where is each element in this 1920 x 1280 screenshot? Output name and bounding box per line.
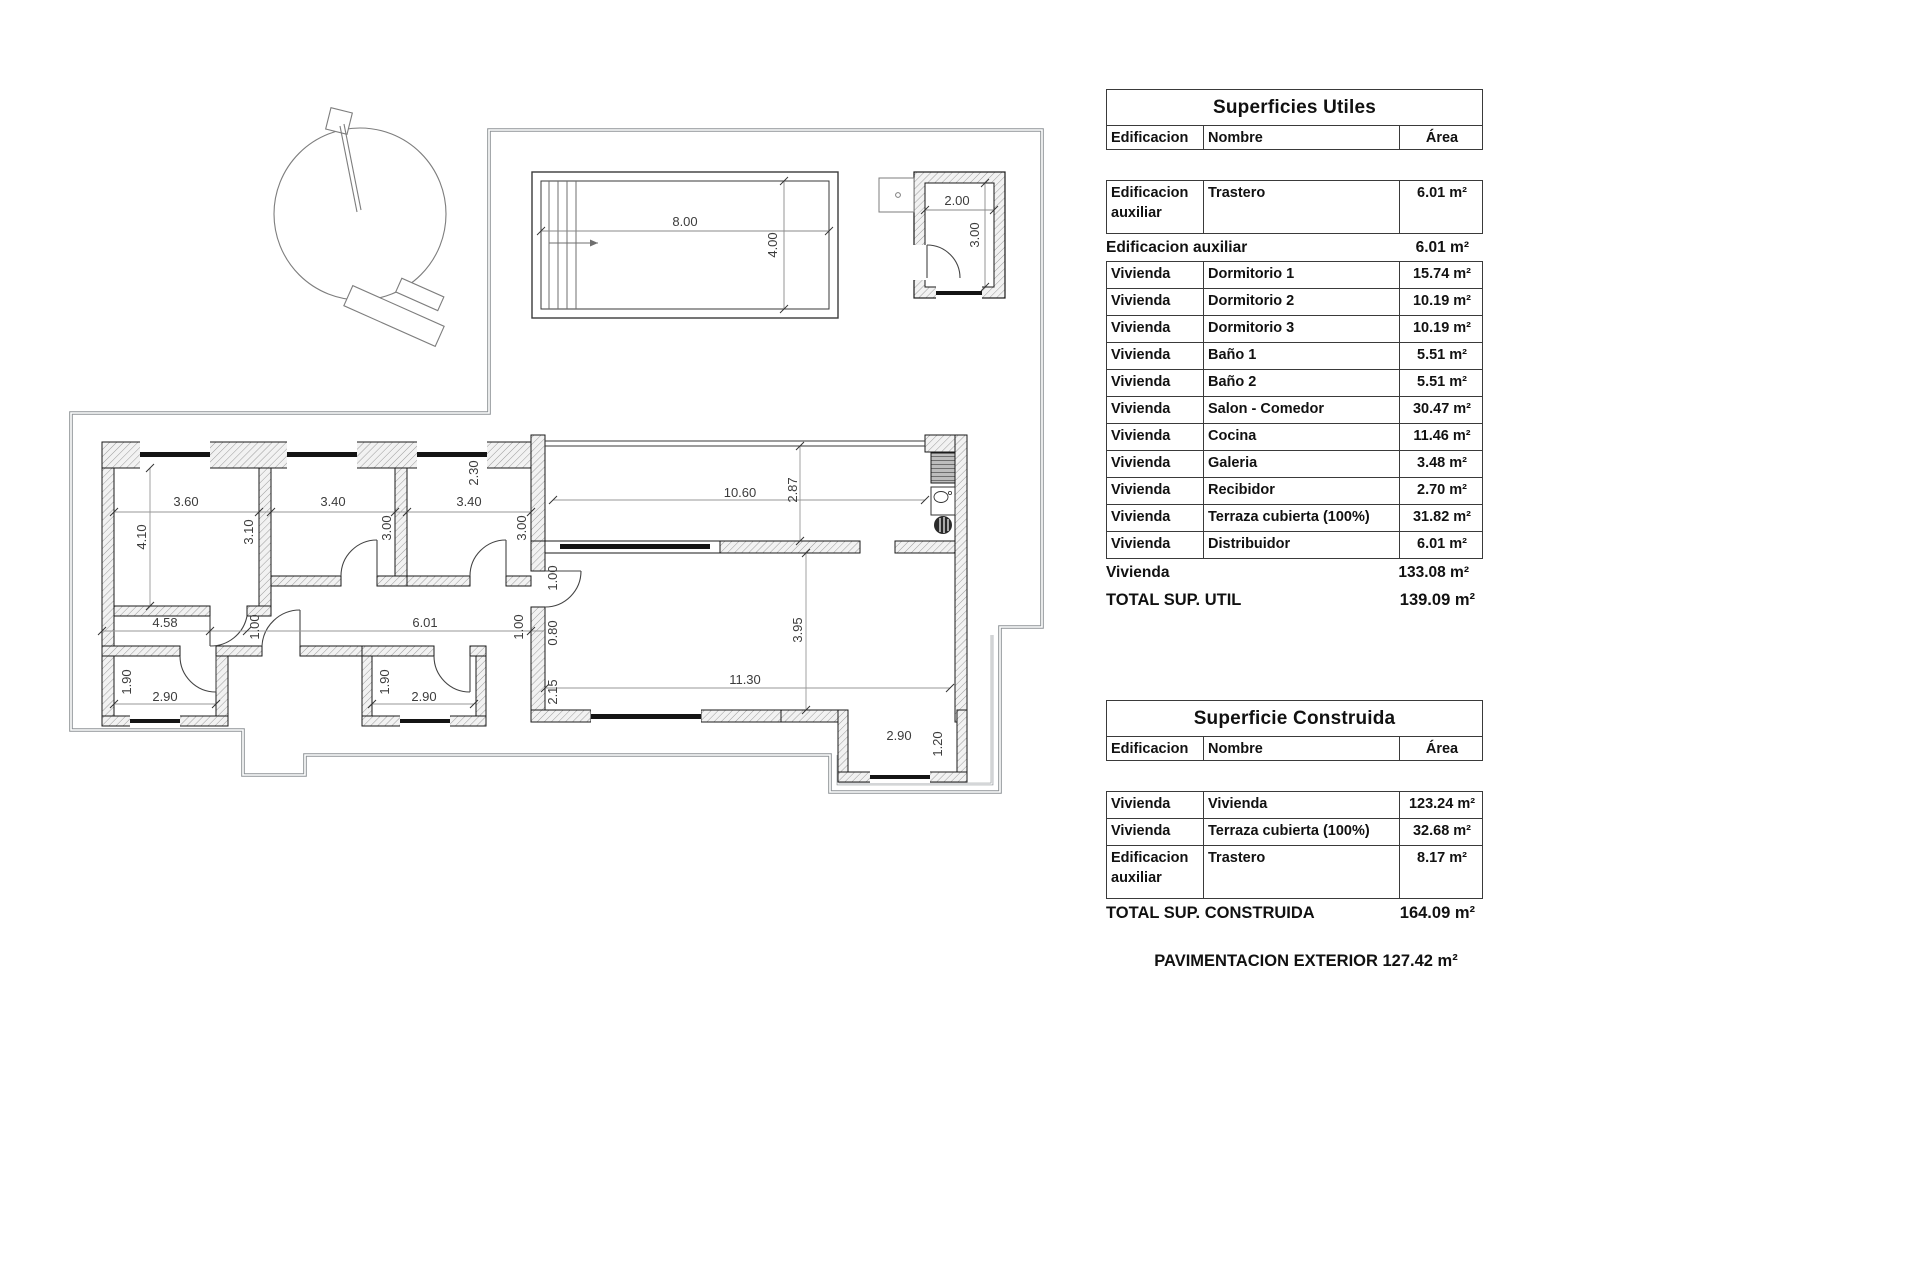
dim-label: 1.00	[247, 614, 262, 639]
table-row: ViviendaTerraza cubierta (100%)32.68 m²	[1106, 819, 1483, 846]
total-label: TOTAL SUP. CONSTRUIDA	[1106, 904, 1315, 923]
subtotal-row: Edificacion auxiliar 6.01 m²	[1106, 234, 1483, 261]
table-cell: Vivienda	[1107, 478, 1203, 504]
table-cell: Terraza cubierta (100%)	[1203, 505, 1399, 531]
table-cell: 5.51 m²	[1399, 370, 1484, 396]
table-cell: 5.51 m²	[1399, 343, 1484, 369]
subtotal-label: Edificacion auxiliar	[1106, 239, 1247, 257]
table-cell: Salon - Comedor	[1203, 397, 1399, 423]
dim-label: 3.40	[456, 494, 481, 509]
floor-plan: 8.00 4.00 2.00 3.	[0, 0, 1920, 1280]
dim-label: 3.00	[514, 515, 529, 540]
column-header: Edificacion	[1107, 126, 1203, 149]
dim-label: 2.90	[152, 689, 177, 704]
total-value: 164.09 m²	[1400, 904, 1475, 923]
total-value: 139.09 m²	[1400, 591, 1475, 610]
table-cell: Trastero	[1203, 846, 1399, 898]
subtotal-value: 6.01 m²	[1416, 239, 1469, 257]
equipment-box	[879, 178, 914, 212]
table-cell: Vivienda	[1203, 792, 1399, 818]
table-cell: Recibidor	[1203, 478, 1399, 504]
table-cell: Vivienda	[1107, 397, 1203, 423]
table-body: ViviendaVivienda123.24 m²ViviendaTerraza…	[1106, 791, 1483, 899]
table-cell: Vivienda	[1107, 451, 1203, 477]
dim-label: 1.20	[930, 731, 945, 756]
kitchen-fixtures	[931, 453, 955, 534]
trastero-building: 2.00 3.00	[879, 172, 1005, 299]
table-row: ViviendaBaño 15.51 m²	[1106, 343, 1483, 370]
table-row: ViviendaDistribuidor6.01 m²	[1106, 532, 1483, 559]
table-cell: Vivienda	[1107, 316, 1203, 342]
table-cell: Trastero	[1203, 181, 1399, 233]
dim-label: 3.40	[320, 494, 345, 509]
total-row: TOTAL SUP. UTIL 139.09 m²	[1106, 586, 1483, 614]
dim-label: 10.60	[724, 485, 757, 500]
dim-label: 4.10	[134, 524, 149, 549]
table-cell: Dormitorio 1	[1203, 262, 1399, 288]
table-cell: Vivienda	[1107, 289, 1203, 315]
table-row: Edificacion auxiliarTrastero6.01 m²	[1106, 181, 1483, 234]
table-title: Superficies Utiles	[1106, 89, 1483, 126]
table-cell: Distribuidor	[1203, 532, 1399, 558]
table-cell: Terraza cubierta (100%)	[1203, 819, 1399, 845]
table-title: Superficie Construida	[1106, 700, 1483, 737]
dim-label: 3.60	[173, 494, 198, 509]
subtotal-value: 133.08 m²	[1398, 564, 1469, 582]
table-cell: Baño 2	[1203, 370, 1399, 396]
dim-label: 0.80	[545, 620, 560, 645]
subtotal-label: Vivienda	[1106, 564, 1169, 582]
table-row: ViviendaDormitorio 310.19 m²	[1106, 316, 1483, 343]
table-row: ViviendaBaño 25.51 m²	[1106, 370, 1483, 397]
dim-label: 2.15	[545, 679, 560, 704]
blueprint-page: 8.00 4.00 2.00 3.	[0, 0, 1920, 1280]
table-cell: 123.24 m²	[1399, 792, 1484, 818]
table-cell: Dormitorio 2	[1203, 289, 1399, 315]
table-row: ViviendaCocina11.46 m²	[1106, 424, 1483, 451]
column-header: Área	[1399, 737, 1484, 760]
dim-label: 4.58	[152, 615, 177, 630]
kitchen-counter	[931, 453, 955, 483]
table-cell: Baño 1	[1203, 343, 1399, 369]
table-cell: Vivienda	[1107, 370, 1203, 396]
table-cell: 15.74 m²	[1399, 262, 1484, 288]
dim-label: 1.00	[511, 614, 526, 639]
column-header: Nombre	[1203, 737, 1399, 760]
table-cell: 2.70 m²	[1399, 478, 1484, 504]
kitchen-sink	[931, 487, 955, 515]
table-row: ViviendaVivienda123.24 m²	[1106, 792, 1483, 819]
tree-symbol	[274, 108, 446, 347]
table-cell: 8.17 m²	[1399, 846, 1484, 898]
dim-label: 11.30	[729, 672, 761, 687]
table-cell: Cocina	[1203, 424, 1399, 450]
table-row: ViviendaDormitorio 210.19 m²	[1106, 289, 1483, 316]
table-cell: Vivienda	[1107, 819, 1203, 845]
table-cell: Vivienda	[1107, 532, 1203, 558]
table-row: ViviendaDormitorio 115.74 m²	[1106, 262, 1483, 289]
total-label: TOTAL SUP. UTIL	[1106, 591, 1241, 610]
table-cell: 31.82 m²	[1399, 505, 1484, 531]
stove-glyph	[934, 516, 952, 534]
table-header: Edificacion Nombre Área	[1106, 126, 1483, 150]
dim-label: 8.00	[672, 214, 697, 229]
dim-label: 1.90	[119, 669, 134, 694]
dim-label: 2.87	[785, 477, 800, 502]
table-cell: Galeria	[1203, 451, 1399, 477]
dim-label: 1.90	[377, 669, 392, 694]
dim-label: 3.95	[790, 617, 805, 642]
table-cell: 3.48 m²	[1399, 451, 1484, 477]
table-cell: Edificacion auxiliar	[1107, 846, 1203, 898]
table-cell: Edificacion auxiliar	[1107, 181, 1203, 233]
subtotal-row: Vivienda 133.08 m²	[1106, 559, 1483, 586]
dim-label: 3.00	[379, 515, 394, 540]
table-cell: Vivienda	[1107, 343, 1203, 369]
table-superficies-utiles: Superficies Utiles Edificacion Nombre Ár…	[1106, 89, 1483, 614]
table-cell: 32.68 m²	[1399, 819, 1484, 845]
table-cell: 10.19 m²	[1399, 316, 1484, 342]
column-header: Área	[1399, 126, 1484, 149]
dim-label: 2.90	[886, 728, 911, 743]
total-row: TOTAL SUP. CONSTRUIDA 164.09 m²	[1106, 899, 1483, 927]
table-header: Edificacion Nombre Área	[1106, 737, 1483, 761]
table-superficie-construida: Superficie Construida Edificacion Nombre…	[1106, 700, 1483, 927]
window-glyph	[936, 291, 982, 295]
exterior-paving-note: PAVIMENTACION EXTERIOR 127.42 m²	[1106, 952, 1506, 971]
table-row: Edificacion auxiliarTrastero8.17 m²	[1106, 846, 1483, 899]
trastero-door-gap	[913, 245, 926, 280]
table-cell: Vivienda	[1107, 792, 1203, 818]
column-header: Edificacion	[1107, 737, 1203, 760]
table-cell: 10.19 m²	[1399, 289, 1484, 315]
dim-label: 2.30	[466, 460, 481, 485]
table-cell: Vivienda	[1107, 424, 1203, 450]
dim-label: 3.00	[967, 222, 982, 247]
table-row: ViviendaRecibidor2.70 m²	[1106, 478, 1483, 505]
dim-label: 1.00	[545, 565, 560, 590]
terrace-edge	[545, 441, 925, 446]
dim-label: 2.90	[411, 689, 436, 704]
dim-label: 2.00	[944, 193, 969, 208]
table-body-aux: Edificacion auxiliarTrastero6.01 m²	[1106, 180, 1483, 234]
table-cell: 6.01 m²	[1399, 532, 1484, 558]
dim-label: 4.00	[765, 232, 780, 257]
table-cell: Vivienda	[1107, 262, 1203, 288]
table-cell: Dormitorio 3	[1203, 316, 1399, 342]
table-row: ViviendaSalon - Comedor30.47 m²	[1106, 397, 1483, 424]
table-cell: Vivienda	[1107, 505, 1203, 531]
table-body-vivienda: ViviendaDormitorio 115.74 m²ViviendaDorm…	[1106, 261, 1483, 559]
table-cell: 11.46 m²	[1399, 424, 1484, 450]
column-header: Nombre	[1203, 126, 1399, 149]
swimming-pool: 8.00 4.00	[532, 172, 838, 318]
porch-outline	[838, 635, 992, 784]
dim-label: 3.10	[241, 519, 256, 544]
dim-label: 6.01	[412, 615, 437, 630]
table-cell: 6.01 m²	[1399, 181, 1484, 233]
table-row: ViviendaGaleria3.48 m²	[1106, 451, 1483, 478]
table-row: ViviendaTerraza cubierta (100%)31.82 m²	[1106, 505, 1483, 532]
table-cell: 30.47 m²	[1399, 397, 1484, 423]
